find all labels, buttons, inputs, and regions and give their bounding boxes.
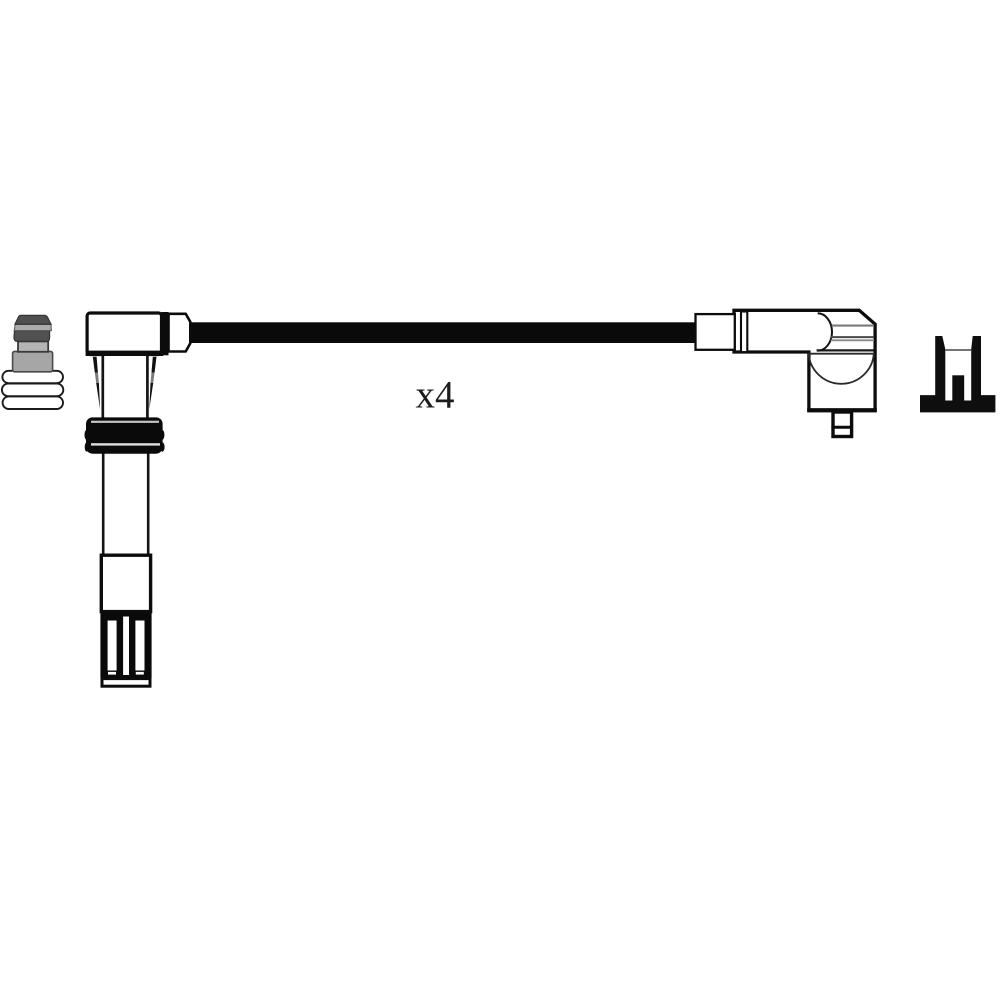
svg-text:x4: x4: [416, 374, 455, 417]
